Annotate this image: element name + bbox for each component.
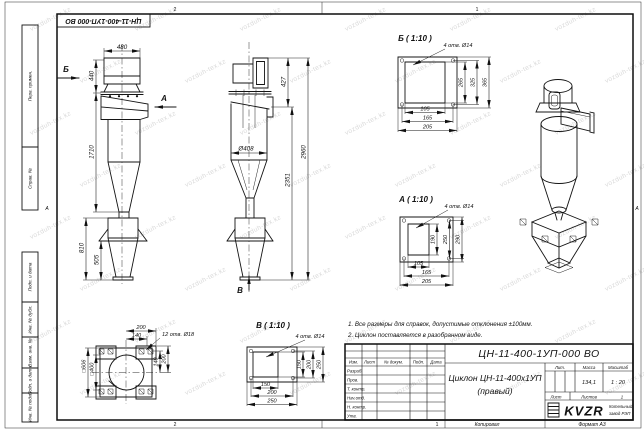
stamp-vzam-inv: Взам. инв. № [28, 338, 33, 366]
side-view-inner-lines [236, 90, 264, 191]
detail-b-dim-365: 365 [483, 77, 489, 87]
flange-centerlines [92, 340, 161, 404]
zone-letter-right: А [634, 206, 639, 212]
detail-v-extension-lines [247, 347, 325, 406]
titleblock-mass-value: 134,1 [582, 380, 596, 386]
titleblock-row-nkontr: Н. контр. [347, 405, 366, 410]
detail-v-dim-250h: 250 [266, 399, 277, 405]
detail-a-extension-lines [400, 217, 464, 286]
dim-label-427: 427 [281, 76, 288, 87]
detail-a-dim-205: 205 [421, 279, 432, 285]
dim-label-480: 480 [117, 44, 128, 51]
detail-view-a: А ( 1:10 ) 4 отв. Ø14 190 250 290 105 16… [398, 195, 473, 286]
titleblock-col-izm: Изм. [349, 360, 358, 365]
titleblock-row-razrab: Разраб. [347, 369, 363, 374]
side-view: Ø408 427 2351 2960 В [227, 42, 310, 295]
titleblock-name-line2: (правый) [477, 386, 512, 396]
titleblock-col-dokum: № докум. [384, 360, 403, 365]
detail-b-dim-105: 105 [420, 107, 430, 113]
titleblock-col-list: Лист [363, 360, 375, 365]
stamp-inv-podl: Инв. № подл. [28, 393, 33, 422]
title-block: ЦН-11-400-1УП-000 ВО Циклон ЦН-11-400х1У… [345, 344, 633, 420]
zone-number-top-left: 2 [174, 7, 177, 13]
company-name-line1: Котельный [609, 404, 633, 409]
titleblock-sheets-label: Листов [580, 395, 597, 400]
detail-a-dim-165: 165 [422, 270, 432, 276]
detail-v-dim-150v: 150 [297, 359, 303, 369]
titleblock-sheets-value: 1 [621, 395, 624, 400]
detail-v-title: В ( 1:10 ) [256, 321, 290, 330]
copied-label: Копировал [475, 422, 500, 428]
zone-letter-left: А [44, 206, 49, 212]
detail-b-dim-205: 205 [422, 125, 433, 131]
detail-b-dim-165: 165 [423, 116, 433, 122]
titleblock-row-prov: Пров. [347, 378, 358, 383]
view-arrow-label-b: Б [63, 65, 69, 74]
designation-stamp-rotated: ЦН-11-400-1УП-000 ВО [57, 14, 150, 27]
note-line-1: 1. Все размеры для справок, допустимые о… [348, 321, 533, 328]
detail-v-holes-note: 4 отв. Ø14 [295, 334, 324, 340]
drawing-sheet: vozduh-tex.kzvozduh-tex.kzvozduh-tex.kzv… [0, 0, 644, 430]
note-line-2: 2. Циклон поставляется в разобранном вид… [347, 332, 482, 339]
stamp-sprav-no: Справ. № [28, 168, 33, 189]
stamp-podp-data-1: Подп. и дата [28, 262, 33, 291]
detail-view-b: Б ( 1:10 ) 4 отв. Ø14 265 325 365 105 16… [398, 34, 491, 132]
company-logo-icon [548, 403, 559, 417]
detail-a-title: А ( 1:10 ) [398, 195, 433, 204]
titleblock-row-utv: Утв. [347, 414, 357, 419]
flange-bottom-view: 200 140 12 отв. Ø18 140 200 □606 □400 [82, 325, 196, 404]
detail-b-title: Б ( 1:10 ) [398, 34, 432, 43]
detail-v-dim-250v: 250 [317, 359, 323, 370]
flange-dim-200-right: 200 [162, 353, 168, 364]
detail-a-dim-105: 105 [414, 261, 424, 267]
stamp-inv-dubl: Инв. № дубл. [28, 305, 33, 333]
detail-b-outline [398, 57, 457, 108]
titleblock-lit-label: Лит. [554, 365, 565, 370]
detail-view-v: В ( 1:10 ) 4 отв. Ø14 150 200 250 150 20… [247, 321, 325, 406]
titleblock-row-nachotd: Нач.отд. [347, 396, 365, 401]
detail-a-dim-290: 290 [456, 234, 462, 245]
view-arrow-label-a: А [160, 94, 167, 103]
titleblock-col-data: Дата [429, 360, 442, 365]
detail-v-dim-200v: 200 [307, 359, 313, 370]
dim-label-810: 810 [79, 242, 86, 253]
front-view-outline [99, 58, 148, 280]
view-arrow-label-v: В [237, 286, 243, 295]
front-view: 480 440 1710 810 505 Б А [57, 44, 176, 284]
stamp-perv-primen: Перв. примен. [28, 71, 33, 102]
dim-label-1710: 1710 [89, 145, 96, 159]
flange-dim-140-top: 140 [132, 333, 142, 339]
zone-number-bottom-left: 2 [174, 422, 177, 428]
titleblock-sheet-label: Лист [549, 395, 561, 400]
titleblock-mass-label: Масса [583, 365, 596, 370]
detail-b-holes [400, 59, 455, 107]
detail-b-holes-note: 4 отв. Ø14 [443, 43, 472, 49]
titleblock-scale-value: 1 : 20 [611, 380, 626, 386]
titleblock-name-line1: Циклон ЦН-11-400х1УП [448, 373, 542, 383]
detail-v-holes [249, 349, 295, 380]
flange-holes-note: 12 отв. Ø18 [162, 332, 195, 338]
company-logo-text: KVZR [564, 404, 603, 419]
technical-notes: 1. Все размеры для справок, допустимые о… [347, 321, 533, 339]
detail-a-dim-250: 250 [443, 234, 449, 245]
zone-number-bottom-right: 1 [436, 422, 439, 428]
detail-v-dim-150h: 150 [261, 382, 271, 388]
isometric-view [520, 80, 598, 274]
detail-b-dim-325: 325 [471, 77, 477, 87]
stamp-podp-data-2: Подп. и дата [28, 366, 33, 395]
dim-label-2960: 2960 [301, 145, 308, 160]
dim-label-2351: 2351 [285, 173, 292, 188]
zone-number-top-right: 1 [476, 7, 479, 13]
drawing-canvas: 2 1 2 1 А А Копировал Формат А3 Перв. пр… [0, 0, 644, 430]
detail-a-holes-note: 4 отв. Ø14 [444, 204, 473, 210]
detail-v-dim-200h: 200 [266, 390, 277, 396]
titleblock-scale-label: Масштаб [608, 365, 629, 370]
titleblock-col-podp: Подп. [413, 360, 424, 365]
flange-dim-606-left: □606 [82, 359, 88, 373]
designation-stamp-text: ЦН-11-400-1УП-000 ВО [65, 17, 142, 24]
company-name-line2: завод РЭП [608, 411, 631, 416]
titleblock-designation: ЦН-11-400-1УП-000 ВО [478, 348, 599, 360]
front-flange-bolts [109, 95, 138, 97]
dim-label-440: 440 [89, 70, 96, 81]
dim-label-diameter-408: Ø408 [237, 146, 254, 153]
flange-dim-200-top: 200 [135, 325, 146, 331]
front-extension-lines [83, 48, 140, 280]
detail-a-dim-190: 190 [431, 234, 437, 244]
side-view-outline [227, 58, 273, 280]
format-label: Формат А3 [578, 422, 606, 428]
flange-dim-400-left: □400 [90, 362, 96, 376]
flange-dim-140-right: 140 [154, 356, 160, 366]
side-stamp-column: Перв. примен. Справ. № Подп. и дата Инв.… [22, 25, 38, 422]
dim-label-505: 505 [94, 254, 101, 265]
detail-b-dim-265: 265 [459, 77, 465, 88]
titleblock-row-tkontr: Т. контр. [347, 387, 366, 392]
